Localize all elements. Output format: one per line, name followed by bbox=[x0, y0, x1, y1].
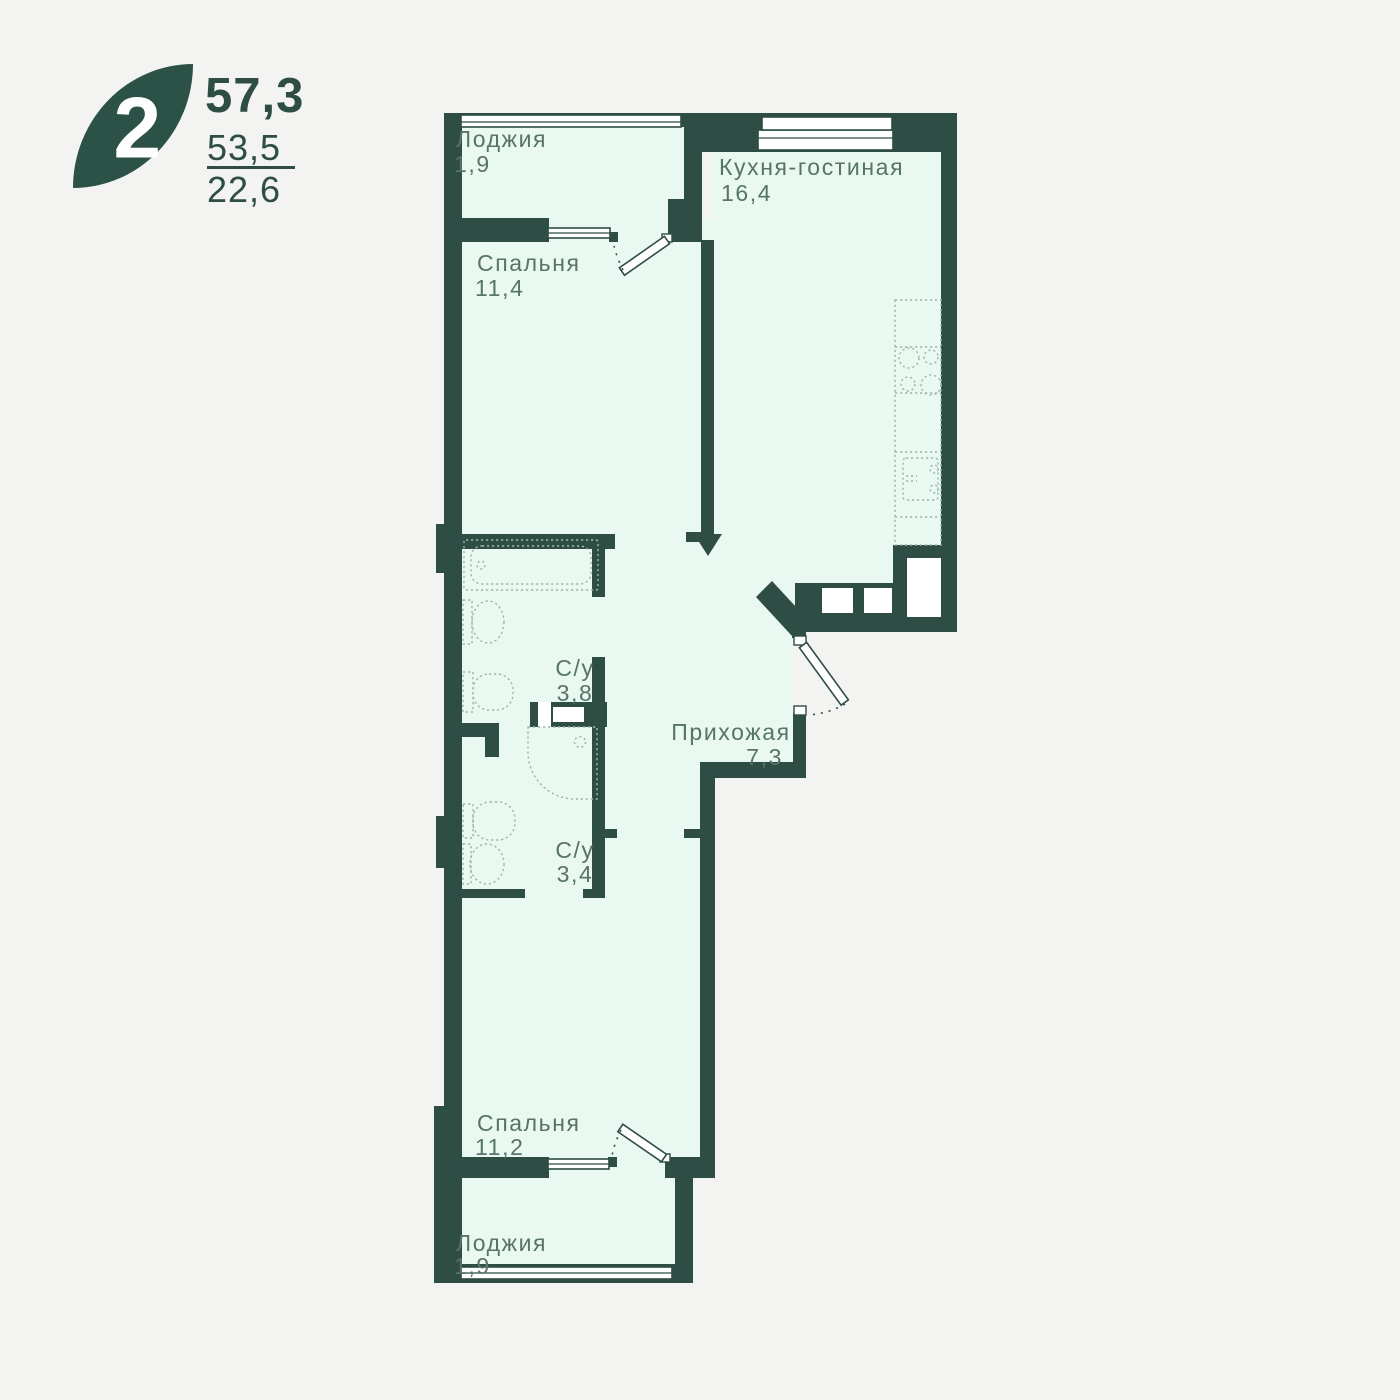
room-floors bbox=[452, 120, 943, 1278]
window-kitchen-bay bbox=[758, 117, 893, 150]
wall-kitchen-left bbox=[701, 240, 714, 534]
secondary-area-value: 53,5 bbox=[207, 130, 281, 166]
label-hallway-area: 7,3 bbox=[746, 744, 783, 770]
window-bedroom-top bbox=[548, 228, 610, 238]
wall-bedroom2-corner-block bbox=[665, 1157, 715, 1178]
label-bedroom-top-area: 11,4 bbox=[475, 275, 524, 301]
label-bedroom-top-name: Спальня bbox=[477, 250, 581, 276]
wardrobe-cell-2 bbox=[864, 588, 892, 613]
wall-loggia1-corner-block bbox=[668, 199, 702, 242]
door-swing-arc bbox=[809, 704, 845, 715]
wall-entrance-lower bbox=[793, 713, 806, 762]
floorplan-drawing: Лоджия 1,9 Спальня 11,4 Кухня-гостиная 1… bbox=[0, 0, 1400, 1400]
label-loggia-top-area: 1,9 bbox=[454, 151, 491, 177]
wall-pilaster-1 bbox=[436, 524, 444, 573]
label-hallway-name: Прихожая bbox=[671, 719, 790, 745]
wall-corridor-right bbox=[700, 762, 715, 1177]
label-loggia-top-name: Лоджия bbox=[456, 126, 547, 152]
bath-sliding-door-pocket bbox=[538, 702, 551, 727]
label-bath-top-name: С/у bbox=[555, 655, 594, 681]
label-bath-bottom-name: С/у bbox=[555, 837, 594, 863]
wall-pilaster-2 bbox=[436, 816, 444, 868]
label-bath-top-area: 3,8 bbox=[557, 680, 594, 706]
label-bedroom-bottom-area: 11,2 bbox=[475, 1134, 524, 1160]
door-leaf bbox=[799, 642, 848, 705]
jamb-bedroom2-door-right bbox=[684, 829, 702, 838]
floorplan-page: 2 57,3 53,5 22,6 bbox=[0, 0, 1400, 1400]
label-kitchen-name: Кухня-гостиная bbox=[719, 154, 904, 180]
wall-baths-divider-left bbox=[444, 723, 499, 737]
label-bath-bottom-area: 3,4 bbox=[557, 861, 594, 887]
label-loggia-bottom-area: 1,9 bbox=[454, 1253, 491, 1279]
tertiary-area-value: 22,6 bbox=[207, 172, 281, 208]
wall-outer-left bbox=[444, 113, 462, 1283]
wall-loggia1-bottom bbox=[444, 218, 549, 242]
wall-pilaster-3 bbox=[434, 1106, 444, 1283]
wall-baths-divider-stub bbox=[485, 737, 499, 757]
wardrobe-cell-1 bbox=[822, 588, 853, 613]
window-bedroom-bottom bbox=[548, 1159, 609, 1169]
total-area-value: 57,3 bbox=[205, 72, 304, 121]
label-kitchen-area: 16,4 bbox=[721, 180, 772, 206]
wall-bath34-right bbox=[592, 727, 605, 897]
rooms-count: 2 bbox=[113, 85, 161, 171]
label-bedroom-bottom-name: Спальня bbox=[477, 1110, 581, 1136]
jamb-bedroom2-door-left bbox=[592, 829, 617, 838]
door-entrance bbox=[794, 636, 848, 715]
window-loggia-bottom bbox=[461, 1267, 672, 1279]
wall-bath34-bottom-left bbox=[444, 889, 525, 898]
bath-sliding-door-panel bbox=[553, 707, 584, 722]
wall-bedroom2-bottom bbox=[444, 1157, 549, 1178]
wall-bath34-bottom-right bbox=[583, 889, 605, 898]
wall-bathroom-top bbox=[444, 534, 615, 549]
utility-niche bbox=[907, 558, 941, 617]
